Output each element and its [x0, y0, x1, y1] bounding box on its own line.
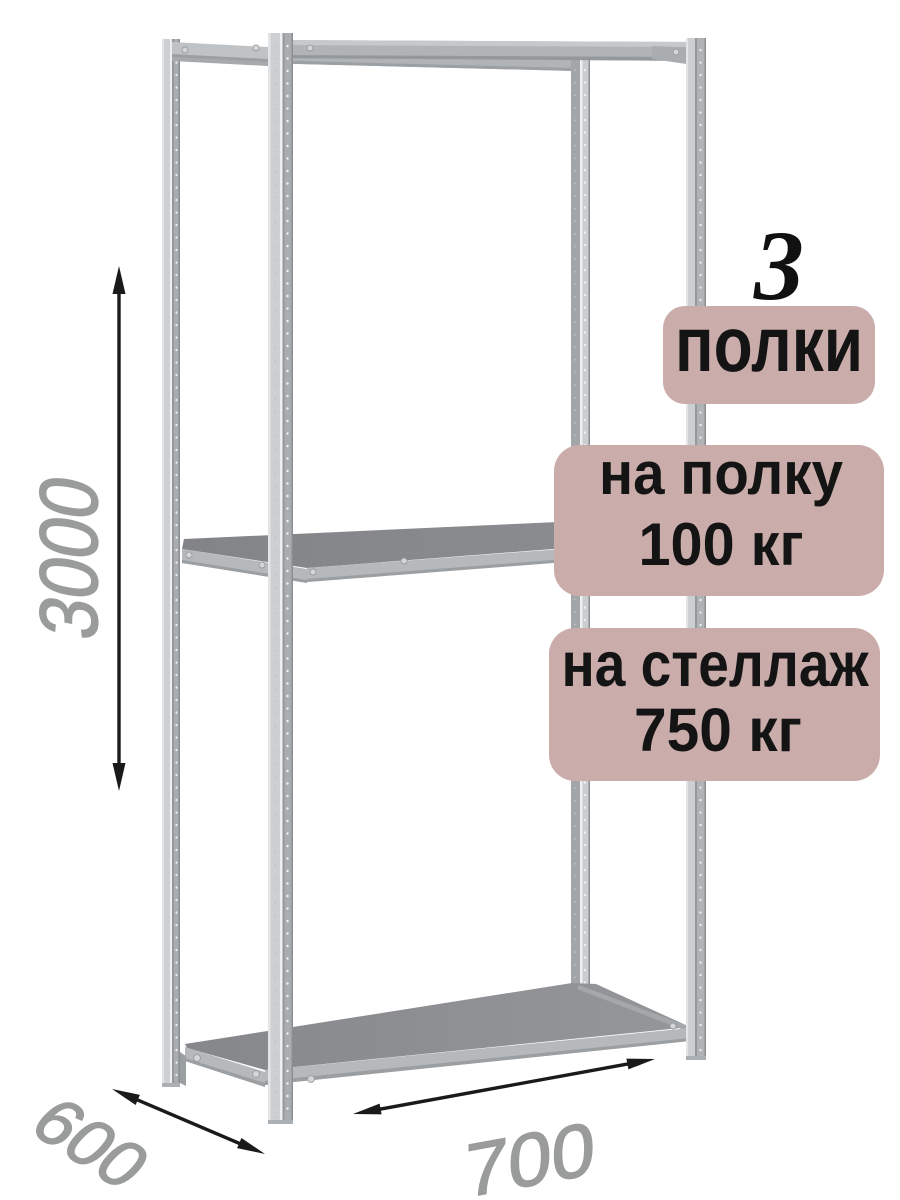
svg-text:100 кг: 100 кг: [639, 511, 804, 578]
svg-text:3000: 3000: [23, 469, 115, 645]
svg-text:полки: полки: [675, 300, 863, 388]
svg-text:на полку: на полку: [599, 440, 844, 507]
svg-text:750 кг: 750 кг: [634, 696, 802, 764]
svg-text:на стеллаж: на стеллаж: [562, 630, 870, 700]
